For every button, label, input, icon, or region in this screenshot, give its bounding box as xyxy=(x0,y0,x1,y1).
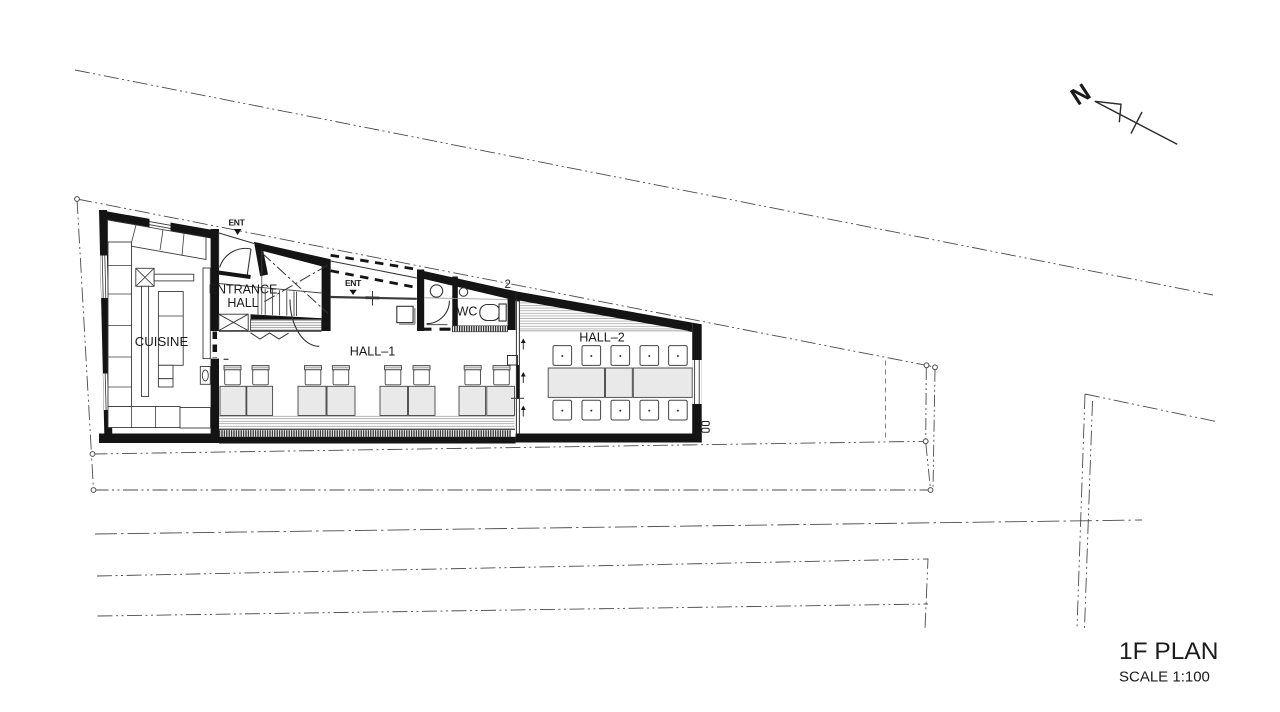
svg-text:HALL–1: HALL–1 xyxy=(350,345,396,359)
svg-text:ENTRANCE: ENTRANCE xyxy=(209,283,278,297)
svg-text:WC: WC xyxy=(457,305,478,319)
svg-text:HALL: HALL xyxy=(227,296,258,310)
svg-text:ENT: ENT xyxy=(345,278,362,288)
svg-text:HALL–2: HALL–2 xyxy=(579,331,625,345)
svg-text:SCALE 1:100: SCALE 1:100 xyxy=(1119,669,1210,686)
svg-text:ENT: ENT xyxy=(228,218,245,228)
svg-text:CUISINE: CUISINE xyxy=(135,334,189,349)
svg-text:N: N xyxy=(1066,79,1096,111)
svg-text:1F PLAN: 1F PLAN xyxy=(1119,638,1218,665)
